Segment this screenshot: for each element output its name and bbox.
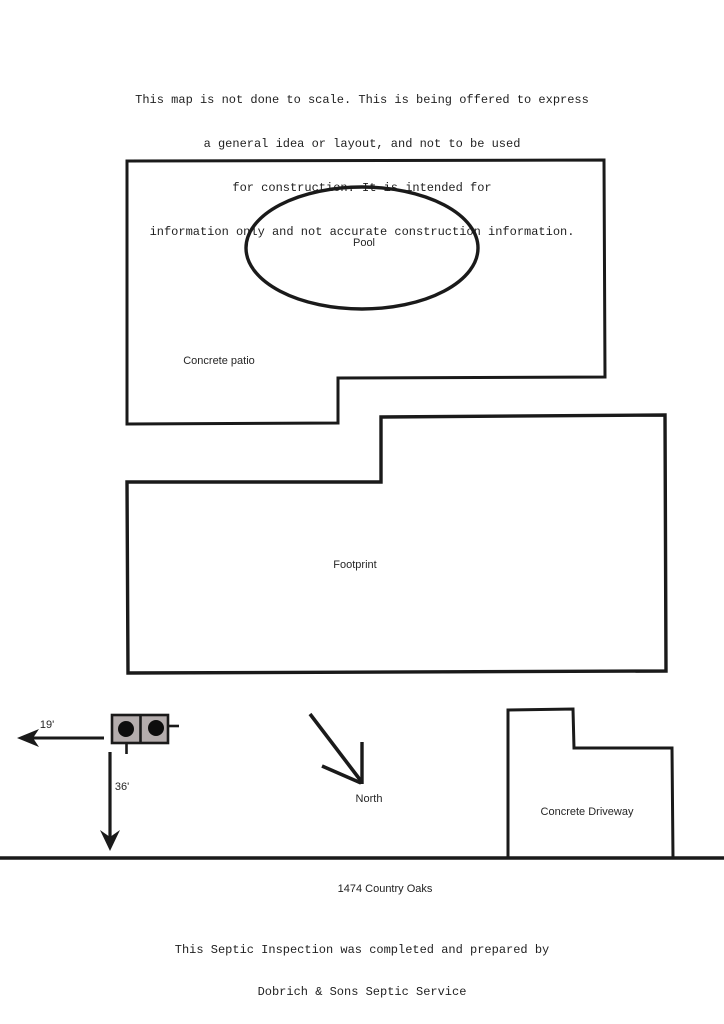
concrete-patio-label: Concrete patio	[183, 355, 255, 367]
footprint-label: Footprint	[333, 559, 376, 571]
pool-label: Pool	[353, 237, 375, 249]
septic-tank-lid-right	[148, 720, 164, 736]
preparer-text: This Septic Inspection was completed and…	[0, 914, 724, 1024]
house-footprint-outline	[127, 415, 666, 673]
septic-inspection-map-page: This map is not done to scale. This is b…	[0, 0, 724, 1024]
site-plan-drawing	[0, 0, 724, 1024]
concrete-driveway-outline	[508, 709, 673, 858]
distance-arrow-19ft-icon	[17, 729, 104, 747]
septic-tank-lid-left	[118, 721, 134, 737]
preparer-line-1: This Septic Inspection was completed and…	[0, 943, 724, 957]
address-label: 1474 Country Oaks	[338, 883, 433, 895]
concrete-driveway-label: Concrete Driveway	[541, 806, 634, 818]
distance-19ft-label: 19'	[40, 719, 54, 731]
distance-36ft-label: 36'	[115, 781, 129, 793]
septic-tank-icon	[112, 715, 179, 754]
preparer-line-2: Dobrich & Sons Septic Service	[0, 985, 724, 999]
north-label: North	[356, 793, 383, 805]
concrete-patio-outline	[127, 160, 605, 424]
distance-arrow-36ft-icon	[100, 752, 120, 851]
north-arrow-icon	[310, 714, 362, 784]
